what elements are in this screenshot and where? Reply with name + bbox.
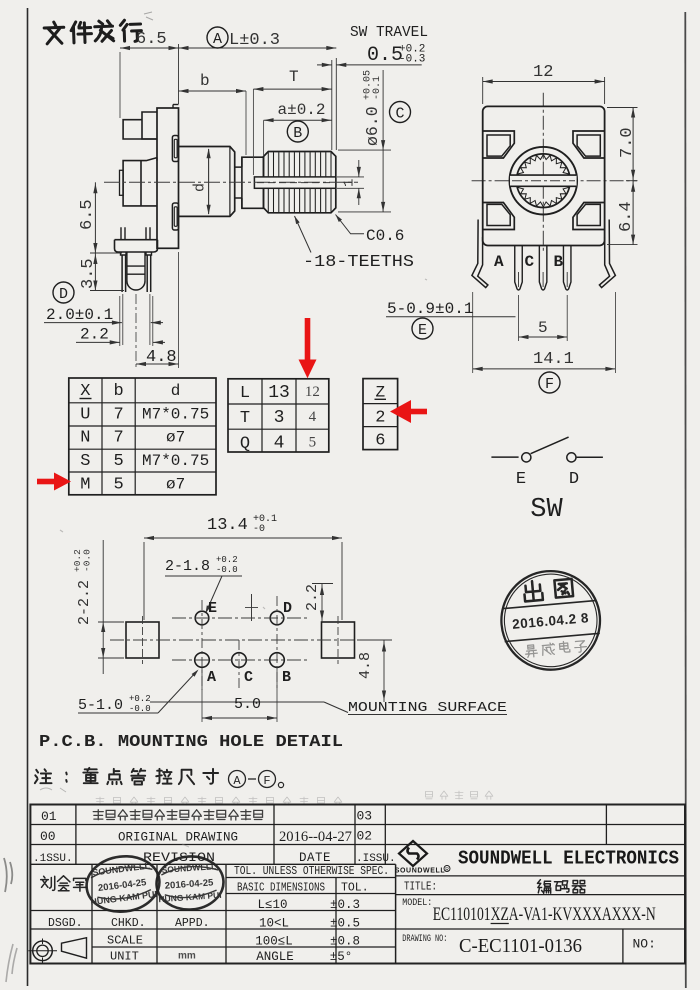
svg-text:-18-TEETHS: -18-TEETHS bbox=[303, 252, 414, 271]
svg-text:12: 12 bbox=[305, 384, 320, 400]
svg-text:R: R bbox=[445, 867, 449, 873]
svg-text:BASIC DIMENSIONS: BASIC DIMENSIONS bbox=[237, 882, 325, 895]
svg-text:6: 6 bbox=[375, 432, 385, 451]
svg-text:TITLE:: TITLE: bbox=[404, 881, 437, 894]
svg-text:5: 5 bbox=[309, 434, 317, 450]
svg-text:SW TRAVEL: SW TRAVEL bbox=[350, 24, 428, 41]
svg-text:A: A bbox=[213, 31, 222, 48]
svg-text:02: 02 bbox=[357, 829, 373, 844]
svg-text:C0.6: C0.6 bbox=[366, 227, 404, 245]
svg-text:7: 7 bbox=[113, 405, 123, 424]
svg-text:SW: SW bbox=[530, 495, 563, 525]
svg-text:2: 2 bbox=[375, 408, 385, 427]
svg-text:3: 3 bbox=[274, 408, 285, 428]
svg-text:UNIT: UNIT bbox=[110, 950, 139, 964]
svg-text:TOL. UNLESS OTHERWISE SPEC.: TOL. UNLESS OTHERWISE SPEC. bbox=[234, 865, 389, 878]
svg-text:00: 00 bbox=[40, 829, 56, 844]
svg-text:A: A bbox=[494, 253, 504, 271]
svg-text:MODEL:: MODEL: bbox=[402, 897, 432, 909]
svg-text:5: 5 bbox=[113, 475, 123, 494]
svg-text:T: T bbox=[289, 68, 299, 86]
svg-text:M7*0.75: M7*0.75 bbox=[142, 452, 209, 470]
svg-text:L: L bbox=[240, 384, 250, 403]
svg-text:100≤L: 100≤L bbox=[255, 935, 293, 949]
svg-text:2-1.8: 2-1.8 bbox=[165, 558, 210, 575]
svg-text:7: 7 bbox=[113, 429, 123, 448]
svg-text:-0.1: -0.1 bbox=[372, 76, 383, 100]
svg-text:MOUNTING SURFACE: MOUNTING SURFACE bbox=[348, 701, 507, 716]
svg-text:ORIGINAL DRAWING: ORIGINAL DRAWING bbox=[118, 830, 238, 845]
svg-text:b: b bbox=[200, 72, 210, 90]
svg-text:SOUNDWELL ELECTRONICS: SOUNDWELL ELECTRONICS bbox=[458, 848, 679, 870]
svg-text:T: T bbox=[240, 409, 250, 428]
svg-text:4: 4 bbox=[274, 433, 285, 453]
svg-text:0.5: 0.5 bbox=[367, 44, 403, 67]
svg-text:D: D bbox=[283, 600, 292, 617]
svg-text:ANGLE: ANGLE bbox=[256, 950, 294, 964]
svg-text:5-0.9±0.1: 5-0.9±0.1 bbox=[387, 300, 473, 318]
svg-text:a±0.2: a±0.2 bbox=[278, 101, 326, 119]
svg-text:03: 03 bbox=[357, 809, 373, 824]
svg-text:-0.0: -0.0 bbox=[216, 565, 238, 575]
svg-text:B: B bbox=[554, 253, 564, 271]
svg-text:A: A bbox=[233, 774, 241, 788]
svg-text:±5°: ±5° bbox=[330, 950, 353, 964]
svg-text:P.C.B. MOUNTING HOLE DETAIL: P.C.B. MOUNTING HOLE DETAIL bbox=[39, 732, 343, 751]
svg-text:F: F bbox=[545, 376, 554, 393]
svg-text:C: C bbox=[244, 669, 253, 686]
svg-text:5: 5 bbox=[113, 452, 123, 471]
svg-text:C-EC1101-0136: C-EC1101-0136 bbox=[459, 936, 582, 957]
svg-text:F: F bbox=[263, 774, 270, 788]
svg-text:12: 12 bbox=[533, 63, 553, 82]
svg-text:+0.2: +0.2 bbox=[216, 555, 238, 565]
svg-text:6.5: 6.5 bbox=[136, 30, 167, 49]
svg-text:b: b bbox=[113, 382, 123, 401]
svg-text:E: E bbox=[208, 600, 217, 617]
svg-text:Q: Q bbox=[240, 434, 250, 453]
svg-text:ø7: ø7 bbox=[166, 475, 185, 493]
svg-text:mm: mm bbox=[178, 951, 196, 962]
svg-text:DRAWING NO:: DRAWING NO: bbox=[402, 933, 447, 945]
svg-text:M: M bbox=[80, 475, 90, 494]
svg-text:E: E bbox=[418, 322, 427, 339]
svg-text:14.1: 14.1 bbox=[533, 350, 574, 369]
svg-text:D: D bbox=[569, 470, 579, 489]
svg-text:7.0: 7.0 bbox=[618, 127, 637, 158]
svg-text:6.5: 6.5 bbox=[78, 199, 97, 230]
svg-text:-0.3: -0.3 bbox=[399, 54, 425, 66]
svg-text:EC110101XZA-VA1-KVXXXAXXX-N: EC110101XZA-VA1-KVXXXAXXX-N bbox=[433, 904, 656, 925]
svg-text:4: 4 bbox=[309, 409, 317, 425]
svg-text:M7*0.75: M7*0.75 bbox=[142, 405, 209, 423]
svg-text:±0.3: ±0.3 bbox=[330, 898, 360, 912]
svg-text:TOL.: TOL. bbox=[341, 882, 369, 895]
svg-text:U: U bbox=[80, 405, 90, 424]
svg-text:.ISSU.: .ISSU. bbox=[356, 853, 396, 865]
svg-text:.1SSU.: .1SSU. bbox=[33, 853, 73, 865]
svg-text:5.0: 5.0 bbox=[234, 696, 261, 713]
svg-text:B: B bbox=[293, 125, 302, 142]
svg-text:01: 01 bbox=[41, 809, 57, 824]
svg-text:NO:: NO: bbox=[633, 937, 656, 952]
svg-text:d: d bbox=[171, 382, 181, 400]
svg-text:13: 13 bbox=[268, 383, 290, 403]
svg-text:B: B bbox=[282, 669, 291, 686]
svg-text:2-2.2: 2-2.2 bbox=[76, 580, 93, 625]
svg-text:4.8: 4.8 bbox=[357, 652, 374, 679]
svg-text:10<L: 10<L bbox=[259, 917, 289, 931]
svg-text:SCALE: SCALE bbox=[107, 934, 143, 948]
svg-text:±0.5: ±0.5 bbox=[330, 917, 360, 931]
svg-text:A: A bbox=[207, 669, 216, 686]
svg-text:3.5: 3.5 bbox=[79, 258, 98, 289]
svg-text:+0.2: +0.2 bbox=[129, 694, 151, 704]
svg-text:-0: -0 bbox=[253, 524, 265, 535]
svg-text:d: d bbox=[192, 183, 209, 192]
svg-text:13.4: 13.4 bbox=[207, 516, 248, 535]
svg-text:DATE: DATE bbox=[299, 851, 331, 865]
svg-text:2.2: 2.2 bbox=[80, 326, 109, 344]
svg-text:APPD.: APPD. bbox=[175, 917, 210, 930]
svg-text:CHKD.: CHKD. bbox=[111, 917, 146, 930]
svg-text:2016--04-27: 2016--04-27 bbox=[279, 829, 352, 845]
svg-text:6.4: 6.4 bbox=[617, 201, 636, 232]
svg-text:SOUNDWELL: SOUNDWELL bbox=[395, 868, 446, 875]
svg-text:±0.8: ±0.8 bbox=[330, 935, 360, 949]
svg-text:ø7: ø7 bbox=[166, 429, 185, 447]
svg-text:2.0±0.1: 2.0±0.1 bbox=[46, 306, 113, 324]
svg-text:N: N bbox=[80, 429, 90, 448]
svg-text:ø6.0: ø6.0 bbox=[363, 106, 382, 146]
svg-text:5: 5 bbox=[538, 319, 548, 337]
svg-text:C: C bbox=[395, 105, 404, 122]
svg-text:-0.0: -0.0 bbox=[82, 549, 93, 572]
svg-text:2.2: 2.2 bbox=[304, 584, 321, 611]
svg-text:DSGD.: DSGD. bbox=[48, 917, 83, 930]
svg-text:S: S bbox=[80, 452, 90, 471]
svg-text:5-1.0: 5-1.0 bbox=[78, 697, 123, 714]
svg-text:C: C bbox=[525, 253, 535, 271]
svg-text:1: 1 bbox=[342, 179, 358, 187]
svg-text:D: D bbox=[59, 286, 68, 303]
svg-text:L≤10: L≤10 bbox=[257, 898, 287, 912]
svg-text:L±0.3: L±0.3 bbox=[229, 31, 280, 50]
svg-text:E: E bbox=[516, 470, 526, 489]
